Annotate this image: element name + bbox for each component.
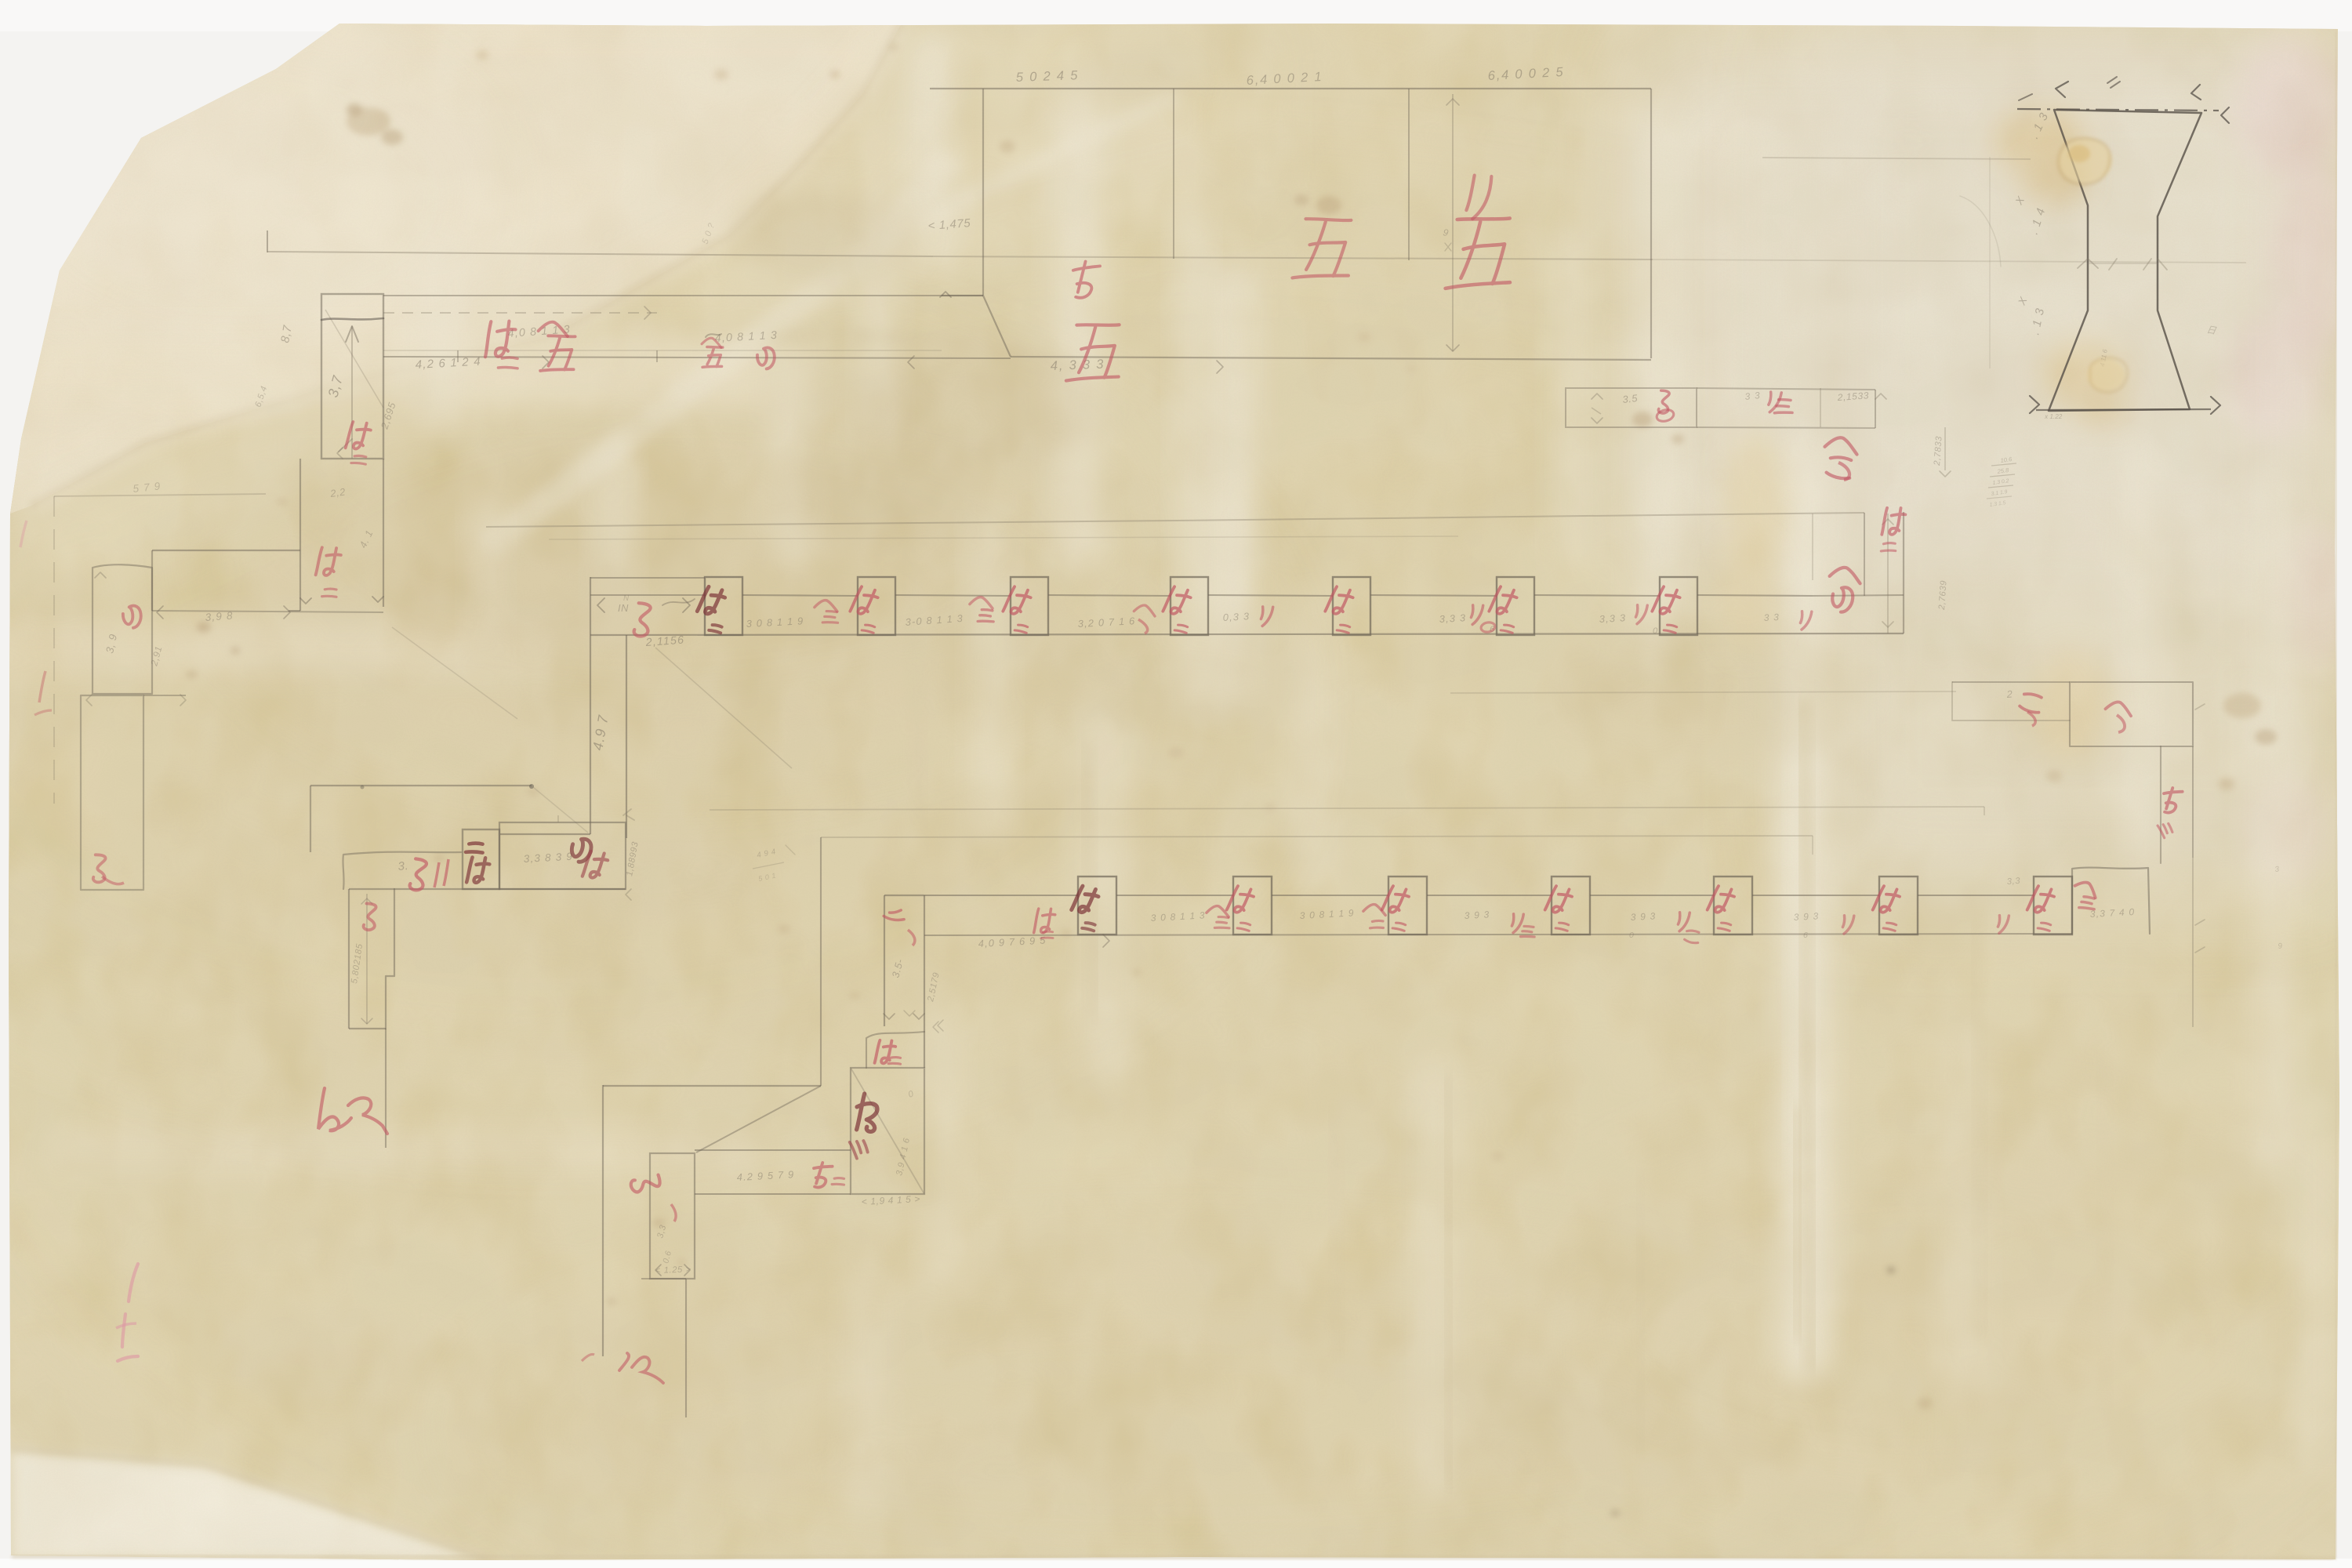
- svg-text:0: 0: [1629, 931, 1634, 940]
- svg-text:3,9 8: 3,9 8: [205, 610, 234, 623]
- svg-text:3 9 3: 3 9 3: [1464, 909, 1490, 921]
- svg-text:3,3 3: 3,3 3: [1599, 612, 1626, 625]
- svg-text:IN: IN: [618, 602, 629, 614]
- svg-text:N: N: [623, 594, 630, 603]
- svg-text:2: 2: [2005, 688, 2013, 700]
- svg-text:5 0 2 4 5: 5 0 2 4 5: [1016, 68, 1080, 85]
- svg-text:3 3: 3 3: [1763, 612, 1780, 623]
- svg-text:0: 0: [1653, 626, 1658, 636]
- svg-text:3.: 3.: [397, 859, 409, 873]
- svg-text:0,3 3: 0,3 3: [1222, 610, 1250, 623]
- svg-text:3 9 3: 3 9 3: [1630, 910, 1656, 923]
- svg-text:2,2: 2,2: [328, 485, 346, 499]
- svg-text:3 9 3: 3 9 3: [1793, 910, 1819, 923]
- svg-text:2,1533: 2,1533: [1836, 390, 1869, 403]
- svg-text:3 3: 3 3: [1744, 390, 1762, 402]
- svg-text:3.5: 3.5: [1622, 392, 1639, 405]
- svg-text:< 1.25 >: < 1.25 >: [655, 1265, 691, 1276]
- svg-text:3,3: 3,3: [2006, 877, 2020, 887]
- svg-text:4, 3 3 3: 4, 3 3 3: [1051, 358, 1105, 373]
- svg-text:3,3 3: 3,3 3: [1439, 612, 1466, 625]
- svg-text:x 1.22: x 1.22: [2044, 413, 2063, 420]
- svg-text:6: 6: [1803, 931, 1808, 940]
